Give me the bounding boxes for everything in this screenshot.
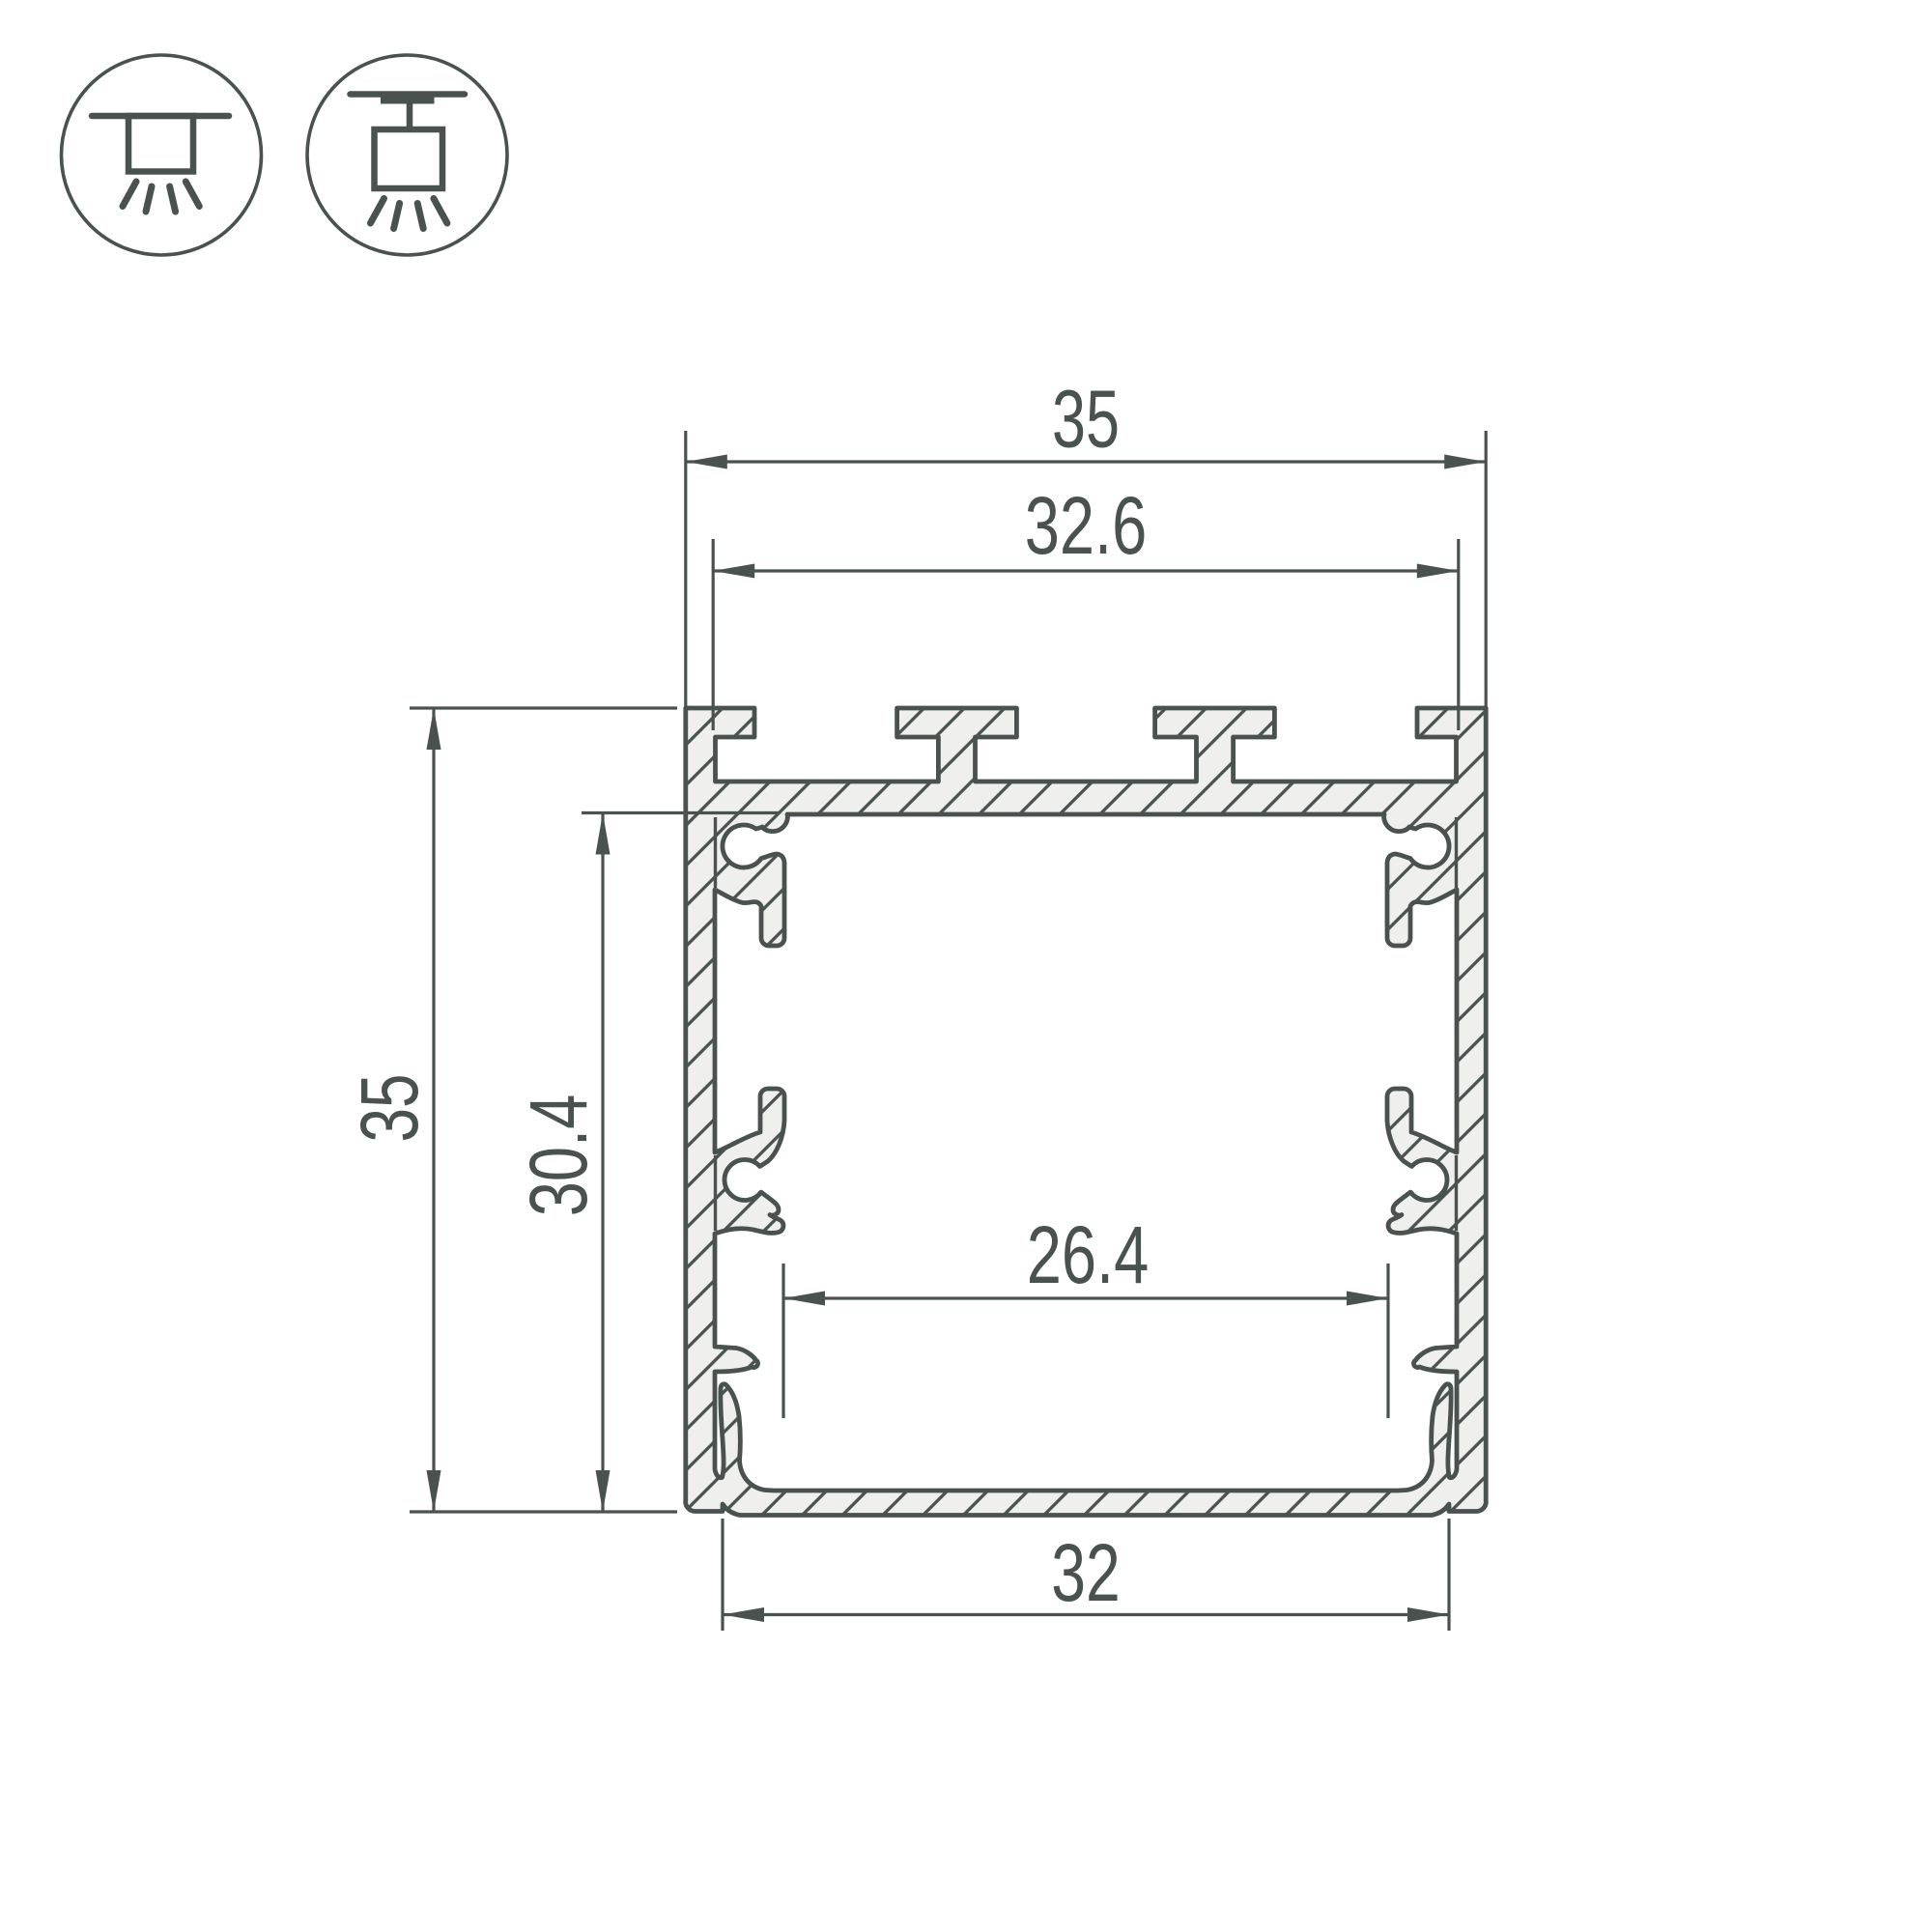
svg-text:32.6: 32.6 xyxy=(1025,480,1148,571)
svg-text:35: 35 xyxy=(1052,374,1120,465)
svg-text:32: 32 xyxy=(1051,1527,1121,1618)
svg-text:35: 35 xyxy=(344,1074,435,1143)
svg-text:30.4: 30.4 xyxy=(513,1094,604,1217)
svg-text:26.4: 26.4 xyxy=(1027,1209,1150,1300)
